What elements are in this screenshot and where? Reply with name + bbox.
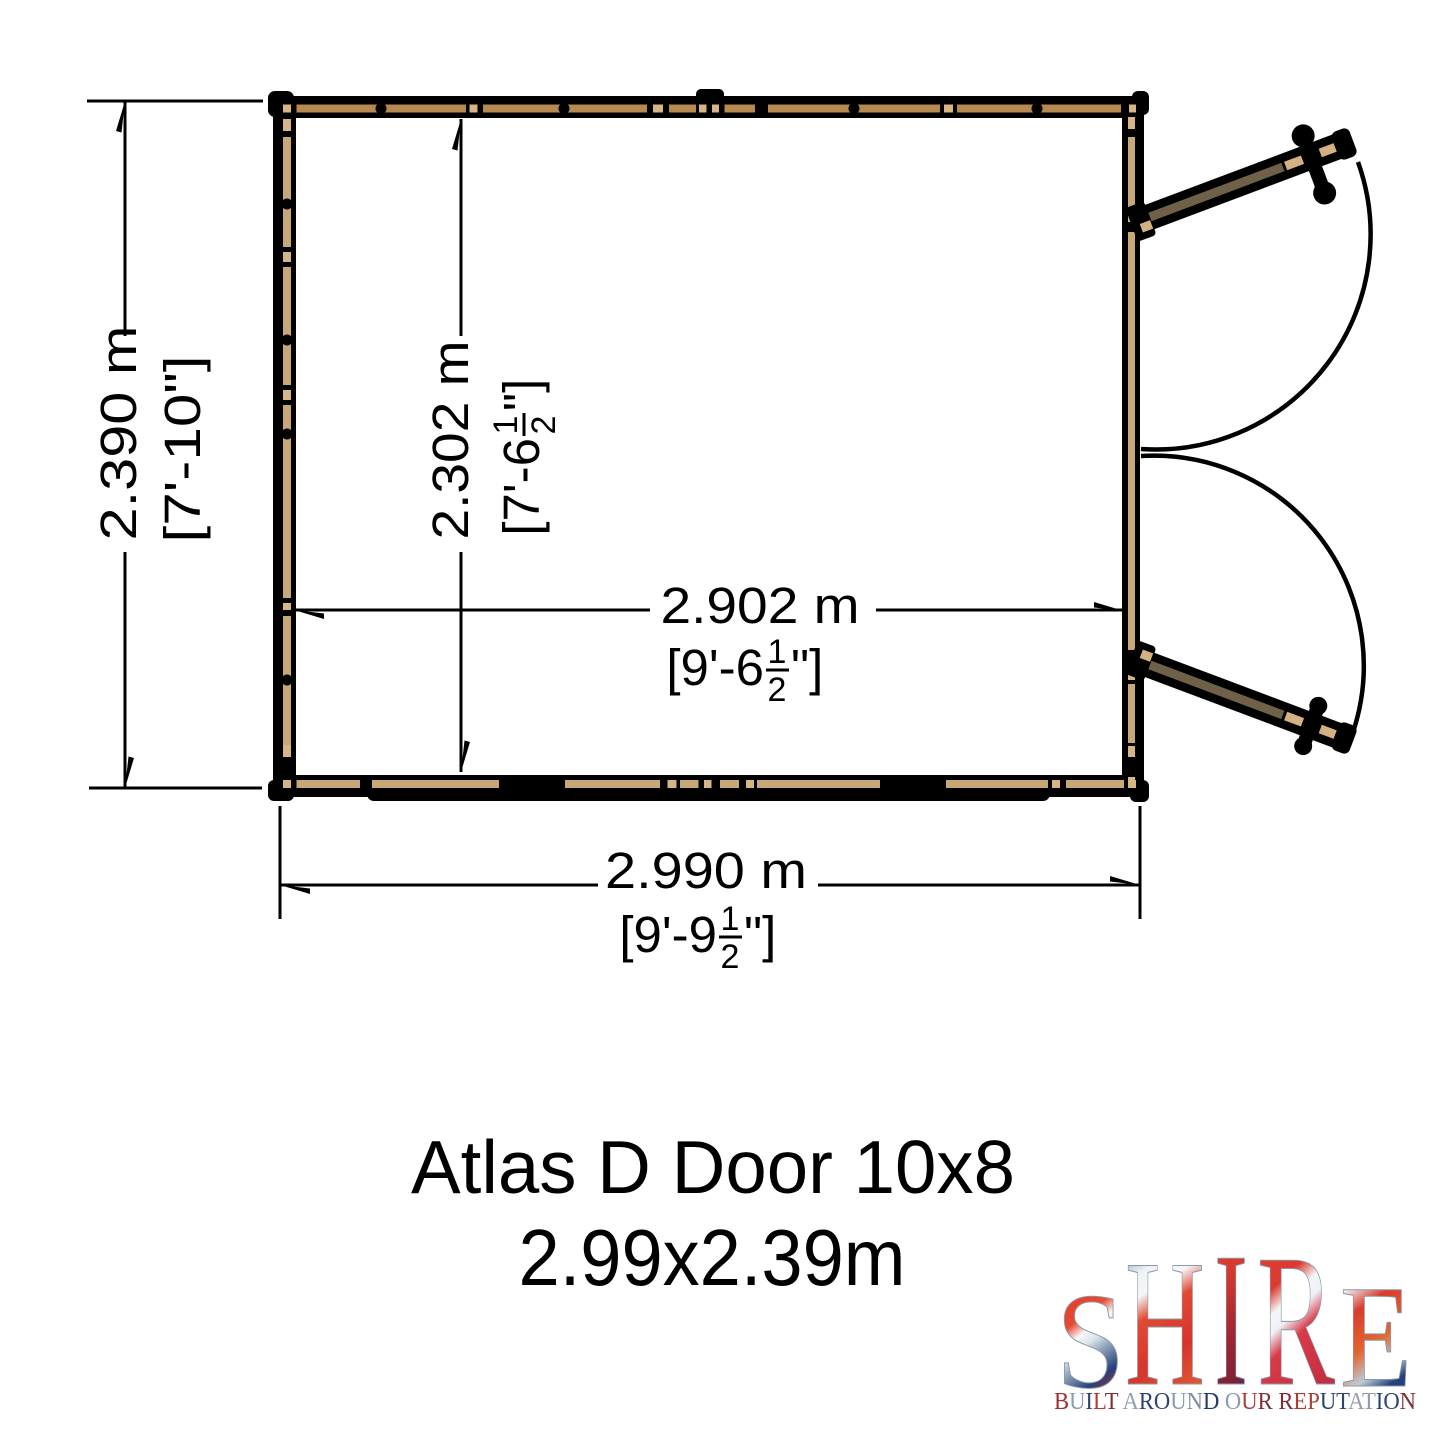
svg-text:2.902 m: 2.902 m <box>661 577 860 634</box>
svg-text:[9'-9: [9'-9 <box>619 906 717 963</box>
svg-text:1: 1 <box>721 900 740 938</box>
svg-text:[7'-6: [7'-6 <box>493 438 550 536</box>
svg-text:"]: "] <box>493 379 550 411</box>
svg-text:2: 2 <box>721 938 740 976</box>
svg-text:2.302 m: 2.302 m <box>422 341 479 540</box>
svg-text:2.99x2.39m: 2.99x2.39m <box>519 1213 906 1302</box>
svg-text:BUILT AROUND OUR REPUTATION: BUILT AROUND OUR REPUTATION <box>1054 1389 1416 1415</box>
svg-text:"]: "] <box>744 906 776 963</box>
svg-text:2.390 m: 2.390 m <box>90 326 147 541</box>
svg-text:"]: "] <box>791 639 823 696</box>
svg-text:[7'-10"]: [7'-10"] <box>154 356 211 543</box>
svg-text:1: 1 <box>487 416 525 435</box>
svg-text:1: 1 <box>768 633 787 671</box>
svg-text:2.990 m: 2.990 m <box>605 842 807 899</box>
svg-text:2: 2 <box>525 416 563 435</box>
svg-text:[9'-6: [9'-6 <box>666 639 764 696</box>
svg-text:2: 2 <box>768 671 787 709</box>
svg-text:Atlas D Door 10x8: Atlas D Door 10x8 <box>411 1125 1015 1209</box>
